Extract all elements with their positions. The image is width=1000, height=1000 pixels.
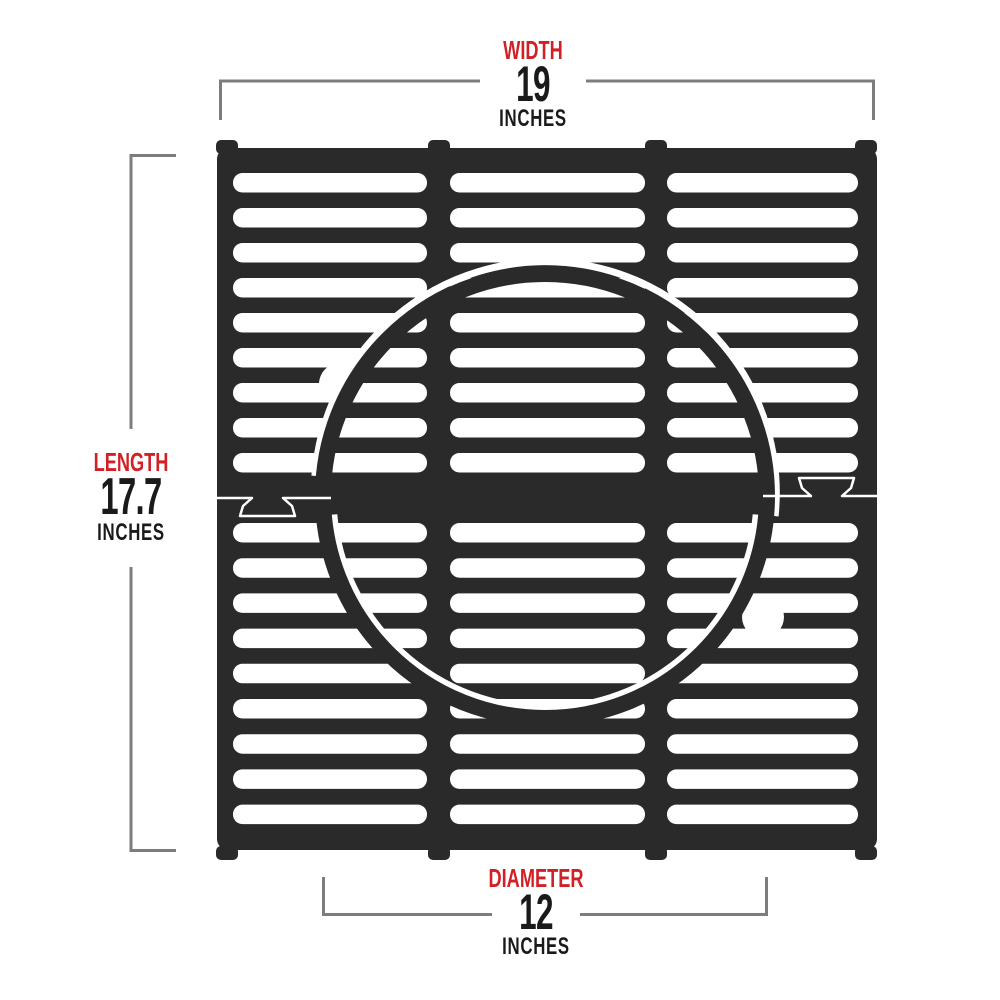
grate-slot [233,734,427,754]
grate-slot [450,383,645,403]
grate-slot [450,593,645,613]
product-dimension-diagram: WIDTH 19 INCHES LENGTH 17.7 INCHES DIAME… [0,0,1000,1000]
grate-slot [667,383,858,403]
diameter-unit: INCHES [466,935,606,958]
grate-slot [667,805,858,825]
grate-slot [233,805,427,825]
grate-slot [233,173,427,193]
grate-slot [450,453,645,473]
length-value: 17.7 [68,475,194,520]
grate-slot [233,348,427,368]
grate-slot [450,734,645,754]
width-value: 19 [470,63,596,106]
grate-slot [667,348,858,368]
grate-slot [233,769,427,789]
grate-slot [667,243,858,263]
grate-slot [450,523,645,543]
grate-slot [450,664,645,684]
grate-slot [233,593,427,613]
grate-slot [450,805,645,825]
grate-slot [233,278,427,298]
grate-slot [233,208,427,228]
length-annotation: LENGTH 17.7 INCHES [31,451,231,544]
grate-slot [450,629,645,649]
width-unit: INCHES [463,107,603,130]
grate-slot [667,173,858,193]
grate-slot [233,243,427,263]
grate-slot [667,769,858,789]
grill-grate-illustration [216,140,877,860]
grate-slot [667,208,858,228]
grate-slot [667,278,858,298]
diameter-annotation: DIAMETER 12 INCHES [436,867,636,958]
grate-slot [450,418,645,438]
grate-slot [450,769,645,789]
grate-slot [450,173,645,193]
length-unit: INCHES [61,521,201,544]
grate-slot [667,734,858,754]
diameter-value: 12 [473,891,599,934]
grate-slot [450,558,645,578]
grate-slot [450,313,645,333]
grate-slot [450,348,645,368]
width-annotation: WIDTH 19 INCHES [433,39,633,130]
grate-slot [667,699,858,719]
grate-slot [450,208,645,228]
grate-slot [233,699,427,719]
